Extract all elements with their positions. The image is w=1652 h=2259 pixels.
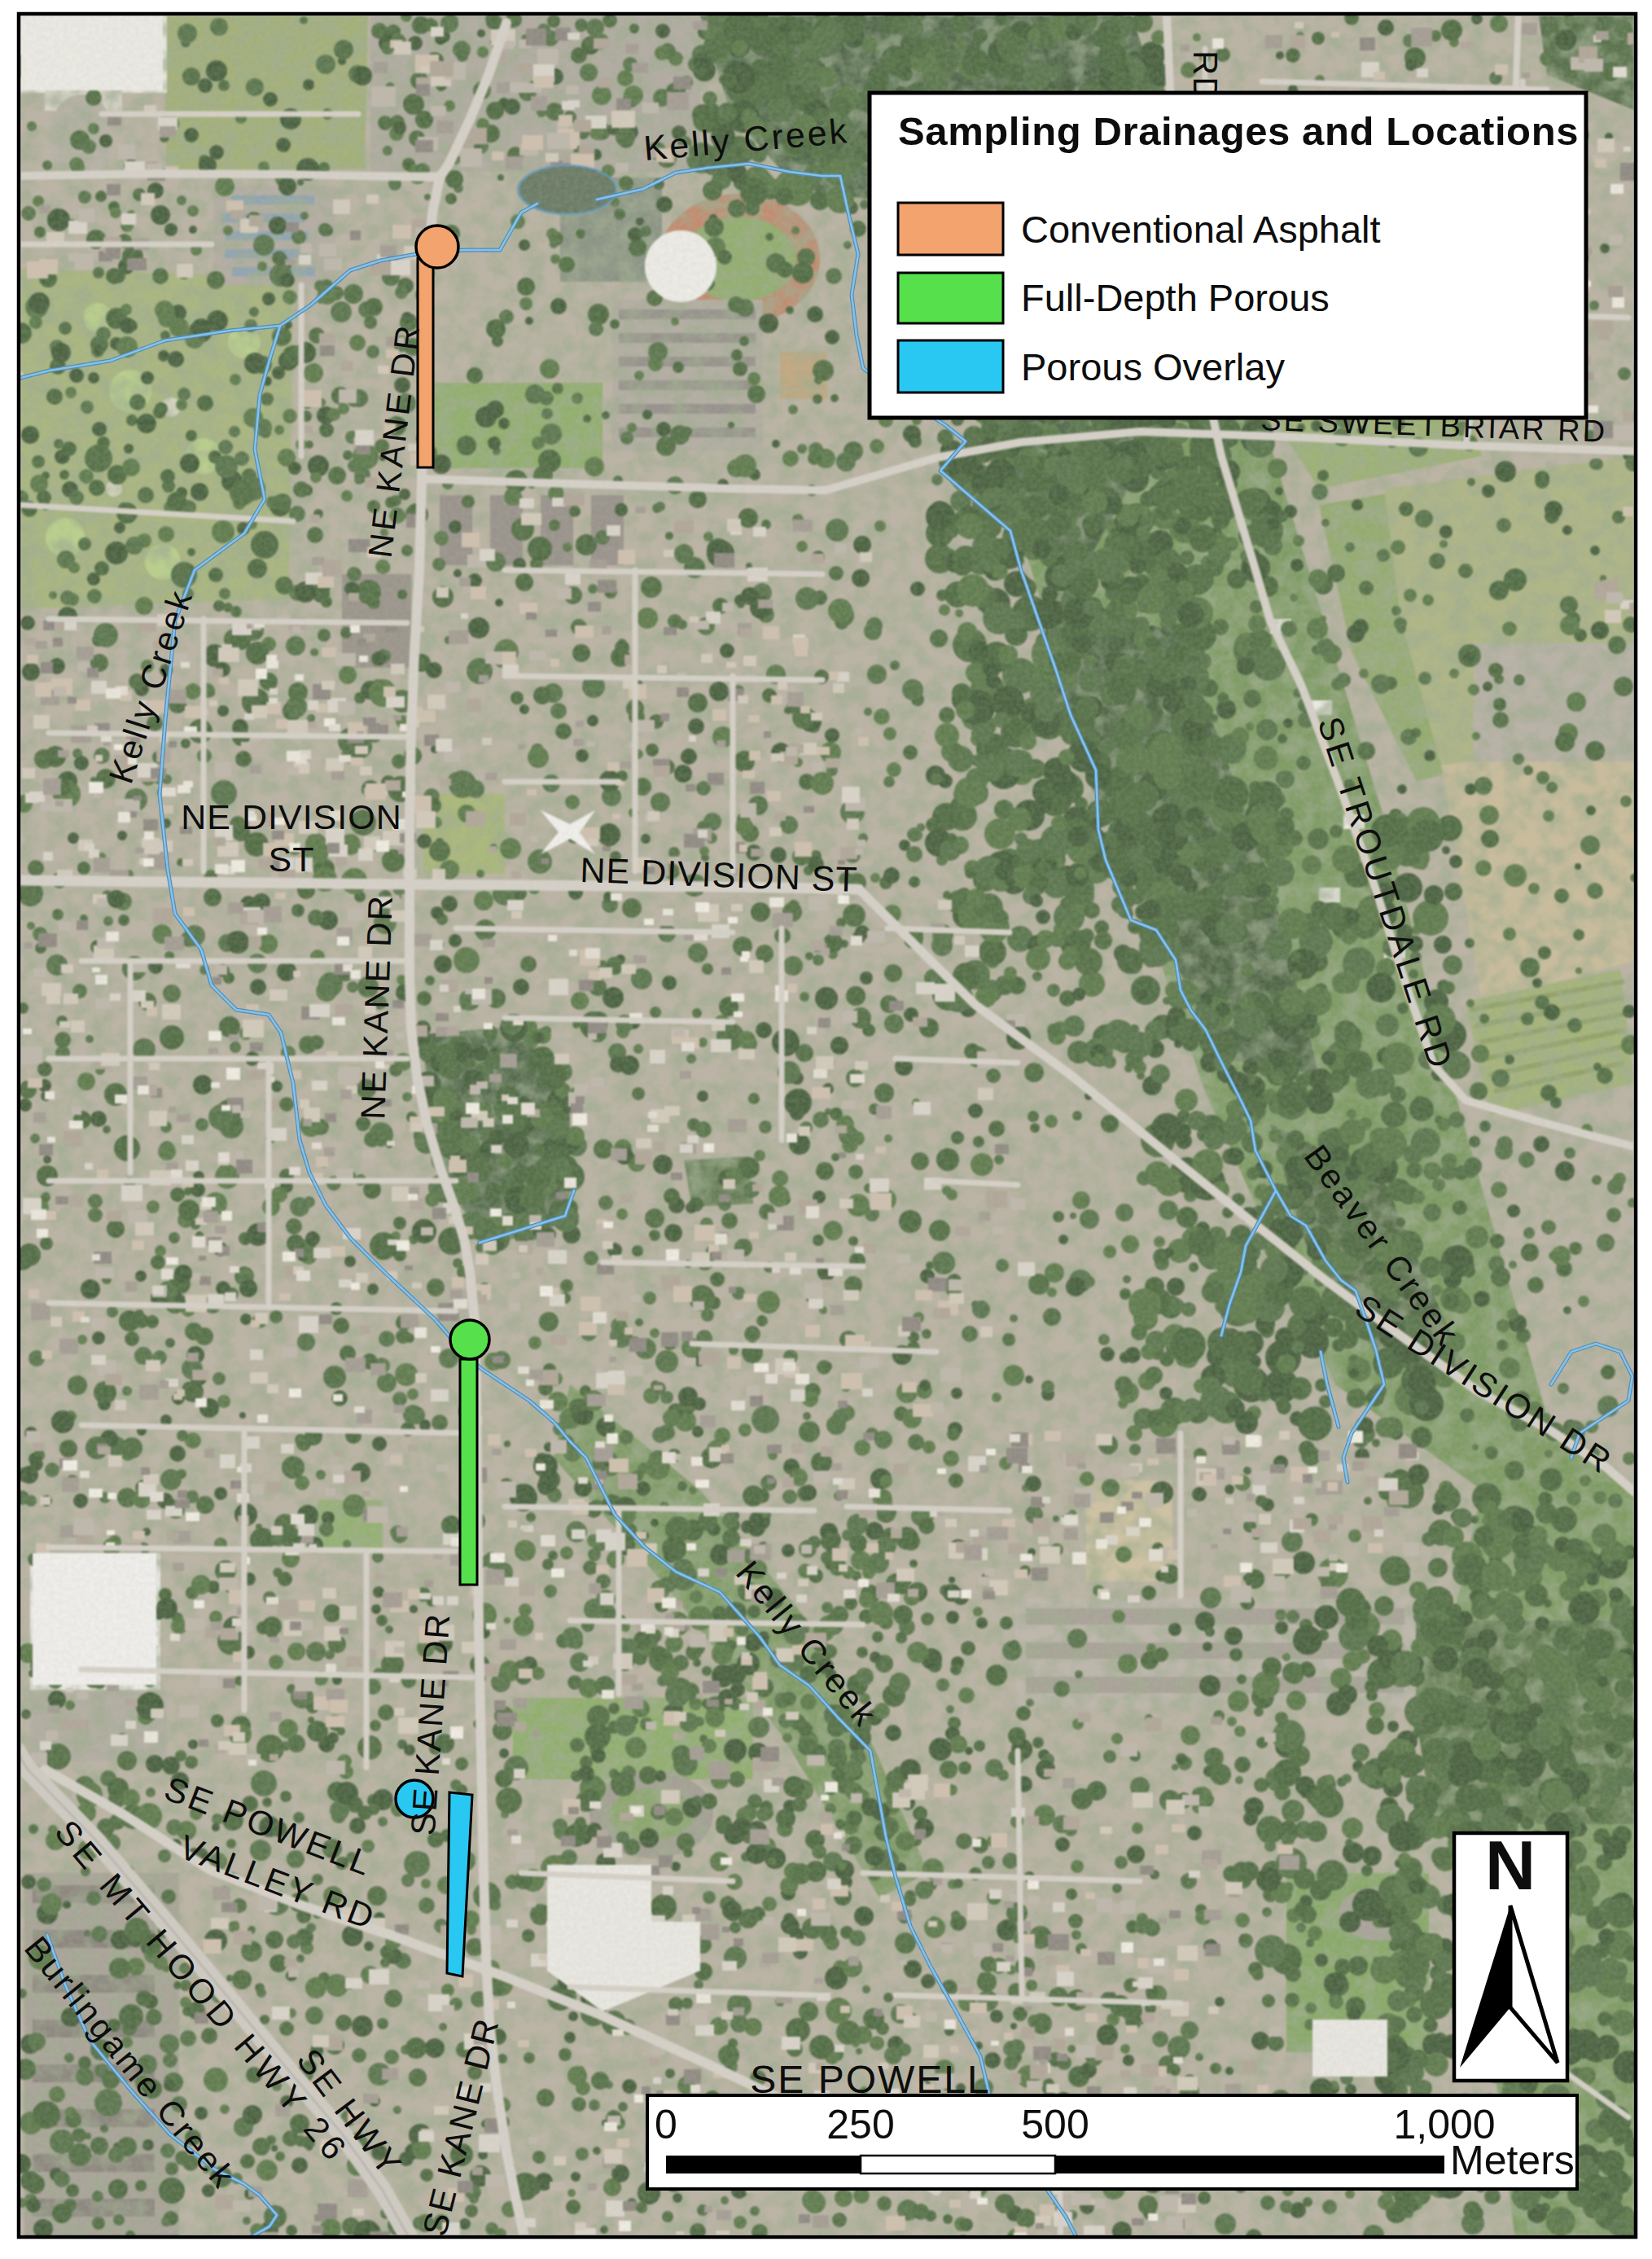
svg-text:0: 0 [655,2102,677,2147]
svg-text:NE DIVISION: NE DIVISION [181,797,401,836]
svg-text:500: 500 [1021,2102,1089,2147]
svg-text:Sampling Drainages and Locatio: Sampling Drainages and Locations [898,109,1579,153]
svg-text:N: N [1485,1826,1536,1904]
svg-text:Porous Overlay: Porous Overlay [1021,345,1285,388]
svg-text:Meters: Meters [1450,2138,1575,2183]
svg-text:250: 250 [826,2102,894,2147]
svg-text:ST: ST [269,840,315,879]
svg-text:Conventional Asphalt: Conventional Asphalt [1021,208,1381,251]
svg-text:NE KANE DR: NE KANE DR [353,893,400,1120]
svg-text:Full-Depth Porous: Full-Depth Porous [1021,276,1330,319]
